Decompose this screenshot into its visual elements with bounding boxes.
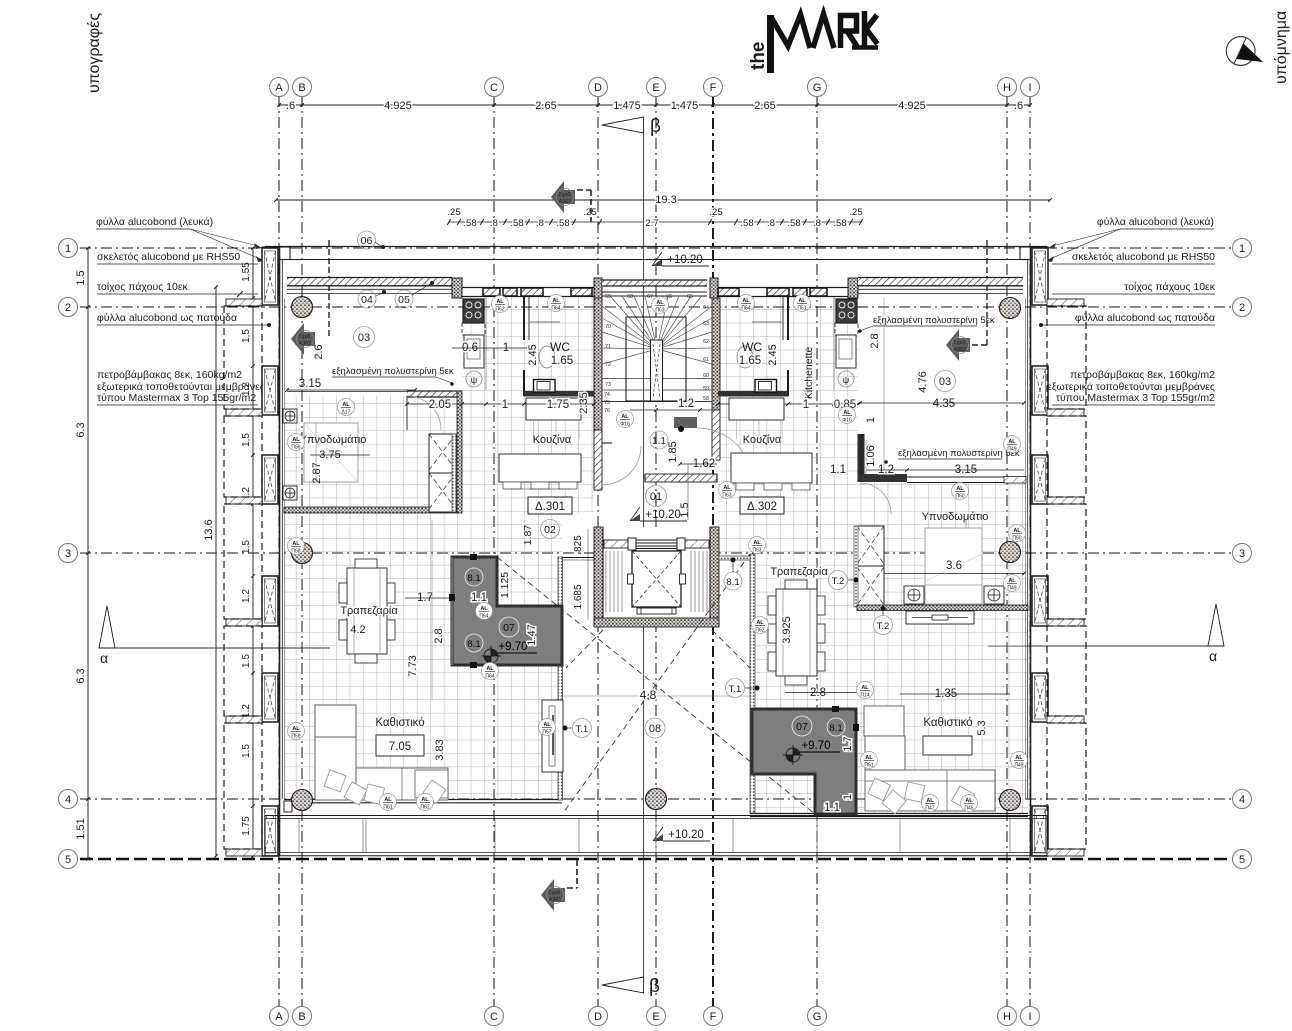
svg-text:AL: AL — [342, 402, 350, 408]
svg-text:Π62: Π62 — [755, 628, 764, 634]
svg-text:εξηλασμένη πολυστερίνη 5εκ: εξηλασμένη πολυστερίνη 5εκ — [898, 448, 1020, 459]
svg-text:Σχεδ.: Σχεδ. — [548, 890, 562, 896]
svg-text:1.2: 1.2 — [678, 398, 694, 410]
svg-text:60: 60 — [703, 373, 709, 379]
svg-text:Σχεδ.: Σχεδ. — [298, 334, 312, 340]
svg-text:Π50: Π50 — [1012, 536, 1021, 542]
svg-text:61: 61 — [703, 357, 709, 363]
svg-text:τοίχος πάχους 10εκ: τοίχος πάχους 10εκ — [1124, 281, 1216, 293]
svg-text:4.925: 4.925 — [898, 100, 926, 112]
svg-text:.58: .58 — [556, 218, 569, 229]
svg-text:5: 5 — [1239, 854, 1245, 866]
svg-text:8.1: 8.1 — [467, 573, 480, 584]
svg-text:Π63: Π63 — [655, 308, 664, 314]
svg-text:2.65: 2.65 — [535, 100, 556, 112]
svg-text:1.5: 1.5 — [241, 654, 252, 668]
svg-text:.58: .58 — [740, 218, 753, 229]
svg-text:1.5: 1.5 — [75, 270, 87, 285]
svg-text:2: 2 — [1239, 302, 1245, 314]
svg-text:1.5: 1.5 — [679, 502, 691, 517]
svg-text:AL: AL — [965, 798, 973, 804]
svg-text:B: B — [298, 82, 305, 94]
svg-text:I: I — [1028, 82, 1031, 94]
svg-text:Π51: Π51 — [797, 306, 806, 312]
svg-text:Π64: Π64 — [479, 614, 488, 620]
svg-text:2.45: 2.45 — [527, 344, 539, 365]
svg-text:.58: .58 — [510, 218, 523, 229]
svg-text:B: B — [298, 1011, 305, 1023]
svg-text:G: G — [813, 82, 822, 94]
svg-text:T.1: T.1 — [729, 684, 742, 695]
svg-text:E: E — [652, 82, 659, 94]
svg-text:7.73: 7.73 — [407, 655, 419, 676]
svg-text:3.925: 3.925 — [781, 616, 793, 644]
svg-text:Δ.302: Δ.302 — [747, 501, 777, 513]
svg-text:04: 04 — [361, 294, 373, 306]
svg-text:6.3: 6.3 — [75, 422, 87, 437]
svg-text:Π64: Π64 — [741, 306, 750, 312]
svg-text:1.55: 1.55 — [241, 262, 252, 282]
svg-text:AL: AL — [292, 726, 300, 732]
svg-text:H: H — [1003, 1011, 1011, 1023]
svg-text:φύλλα alucobond ως πατούδα: φύλλα alucobond ως πατούδα — [1075, 312, 1215, 324]
svg-text:1.125: 1.125 — [499, 572, 511, 598]
svg-text:Π60: Π60 — [955, 494, 964, 500]
svg-text:1.87: 1.87 — [522, 525, 534, 546]
svg-text:α: α — [100, 650, 108, 666]
svg-text:.8: .8 — [536, 218, 544, 229]
svg-text:64: 64 — [703, 305, 709, 311]
svg-text:3: 3 — [1239, 548, 1245, 560]
svg-text:AL: AL — [1008, 578, 1016, 584]
svg-text:AL: AL — [798, 298, 806, 304]
svg-text:AL: AL — [843, 410, 851, 416]
svg-text:1.5: 1.5 — [241, 540, 252, 554]
svg-text:Π47: Π47 — [925, 806, 934, 812]
svg-text:67: 67 — [647, 294, 653, 300]
svg-text:πετροβάμβακας 8εκ, 160kg/m2: πετροβάμβακας 8εκ, 160kg/m2 — [97, 369, 242, 381]
svg-text:07: 07 — [503, 622, 515, 634]
svg-text:Π63: Π63 — [752, 548, 761, 554]
svg-text:1: 1 — [502, 399, 508, 411]
svg-text:A301: A301 — [559, 199, 572, 205]
svg-text:Υπνοδωμάτιο: Υπνοδωμάτιο — [922, 511, 989, 523]
svg-text:WC: WC — [742, 340, 762, 354]
svg-text:AL: AL — [656, 300, 664, 306]
svg-text:1.75: 1.75 — [241, 816, 252, 836]
svg-text:2.45: 2.45 — [767, 344, 779, 365]
svg-text:AL: AL — [543, 722, 551, 728]
svg-text:τοίχος πάχους 10εκ: τοίχος πάχους 10εκ — [97, 281, 189, 293]
svg-text:1.75: 1.75 — [547, 399, 569, 411]
svg-text:7.05: 7.05 — [389, 741, 411, 753]
svg-text:2.8: 2.8 — [433, 628, 445, 643]
svg-text:Φ16: Φ16 — [620, 422, 630, 428]
svg-text:AL: AL — [1015, 755, 1023, 761]
svg-text:β: β — [650, 116, 661, 137]
svg-text:AL: AL — [865, 755, 873, 761]
svg-text:Π58: Π58 — [291, 549, 300, 555]
svg-text:AL: AL — [753, 540, 761, 546]
svg-text:ψ: ψ — [471, 375, 477, 385]
svg-text:Δ17: Δ17 — [342, 410, 351, 416]
svg-text:φύλλα alucobond ως πατούδα: φύλλα alucobond ως πατούδα — [97, 312, 237, 324]
svg-text:AL: AL — [956, 486, 964, 492]
svg-text:σκελετός alucobond με RHS50: σκελετός alucobond με RHS50 — [1072, 251, 1215, 263]
svg-text:C: C — [490, 1011, 498, 1023]
svg-text:AL: AL — [1008, 439, 1016, 445]
svg-text:8.1: 8.1 — [726, 577, 739, 588]
svg-text:AL: AL — [621, 414, 629, 420]
svg-text:AL: AL — [552, 298, 560, 304]
svg-text:Σχεδ.: Σχεδ. — [953, 340, 967, 346]
svg-text:1.5: 1.5 — [241, 744, 252, 758]
svg-text:2.05: 2.05 — [429, 399, 451, 411]
svg-text:2.8: 2.8 — [869, 333, 881, 348]
svg-text:3.83: 3.83 — [434, 739, 446, 760]
svg-text:Καθιστικό: Καθιστικό — [375, 717, 424, 729]
svg-text:1.65: 1.65 — [739, 355, 761, 367]
svg-text:T.2: T.2 — [832, 576, 845, 587]
svg-text:74: 74 — [604, 392, 610, 398]
svg-text:2.8: 2.8 — [810, 687, 826, 699]
svg-text:AL: AL — [421, 797, 429, 803]
svg-text:08: 08 — [649, 723, 661, 735]
svg-text:1.51: 1.51 — [75, 818, 87, 839]
svg-text:3.6: 3.6 — [946, 560, 962, 572]
svg-text:+10.20: +10.20 — [668, 829, 704, 841]
svg-text:1.5: 1.5 — [241, 433, 252, 447]
svg-text:τύπου Mastermax 3 Top 155gr/m2: τύπου Mastermax 3 Top 155gr/m2 — [1056, 392, 1215, 404]
svg-text:πετροβάμβακας 8εκ, 160kg/m2: πετροβάμβακας 8εκ, 160kg/m2 — [1070, 369, 1215, 381]
svg-text:.825: .825 — [573, 535, 584, 555]
svg-text:Kitchenette: Kitchenette — [803, 347, 815, 400]
svg-text:Κουζίνα: Κουζίνα — [533, 434, 572, 446]
svg-text:Π62: Π62 — [420, 805, 429, 811]
svg-text:4: 4 — [1239, 794, 1245, 806]
svg-text:13.6: 13.6 — [203, 519, 215, 540]
svg-text:Π64: Π64 — [551, 306, 560, 312]
svg-text:.8: .8 — [813, 218, 821, 229]
svg-text:76: 76 — [604, 408, 610, 414]
svg-text:2.65: 2.65 — [754, 100, 775, 112]
svg-text:1.47: 1.47 — [526, 624, 538, 645]
svg-text:4.925: 4.925 — [384, 100, 412, 112]
svg-text:1.475: 1.475 — [671, 100, 699, 112]
svg-text:.6: .6 — [1014, 100, 1023, 112]
svg-text:Π51: Π51 — [864, 763, 873, 769]
svg-text:.58: .58 — [463, 218, 476, 229]
svg-text:75: 75 — [604, 400, 610, 406]
svg-text:.8: .8 — [490, 218, 498, 229]
svg-text:D: D — [594, 1011, 602, 1023]
svg-text:6.3: 6.3 — [75, 668, 87, 683]
svg-text:1.1: 1.1 — [652, 436, 666, 447]
svg-text:2.87: 2.87 — [311, 462, 323, 483]
svg-text:03: 03 — [358, 332, 370, 344]
svg-text:φύλλα alucobond (λευκά): φύλλα alucobond (λευκά) — [96, 216, 213, 228]
svg-text:1.85: 1.85 — [667, 441, 679, 462]
svg-text:AL: AL — [496, 299, 504, 305]
svg-text:A: A — [275, 1011, 283, 1023]
svg-text:72: 72 — [605, 362, 611, 368]
svg-text:AL: AL — [292, 437, 300, 443]
svg-text:.58: .58 — [787, 218, 800, 229]
svg-text:.25: .25 — [709, 207, 722, 218]
svg-text:1: 1 — [1239, 243, 1245, 255]
svg-text:1: 1 — [65, 243, 71, 255]
svg-text:Π63: Π63 — [722, 493, 731, 499]
svg-text:H: H — [1003, 82, 1011, 94]
svg-text:G: G — [813, 1011, 822, 1023]
svg-text:05: 05 — [398, 294, 410, 306]
svg-text:02: 02 — [544, 524, 556, 536]
svg-text:AL: AL — [1013, 528, 1021, 534]
svg-text:.25: .25 — [849, 207, 862, 218]
svg-text:.58: .58 — [833, 218, 846, 229]
svg-text:19.3: 19.3 — [655, 194, 676, 206]
svg-text:.6: .6 — [286, 100, 295, 112]
svg-text:AL: AL — [384, 797, 392, 803]
svg-text:4.76: 4.76 — [917, 371, 929, 392]
svg-text:1: 1 — [842, 794, 854, 800]
svg-text:T.2: T.2 — [877, 621, 890, 632]
svg-text:F: F — [710, 1011, 717, 1023]
svg-text:AL: AL — [926, 798, 934, 804]
svg-text:Δ.301: Δ.301 — [535, 501, 565, 513]
svg-text:εξηλασμένη πολυστερίνη 5εκ: εξηλασμένη πολυστερίνη 5εκ — [873, 315, 995, 326]
svg-text:71: 71 — [605, 344, 611, 350]
svg-text:1.685: 1.685 — [573, 584, 584, 609]
svg-text:A302: A302 — [954, 347, 967, 353]
svg-text:AL: AL — [742, 298, 750, 304]
svg-text:T.1: T.1 — [576, 724, 589, 735]
svg-text:F: F — [710, 82, 717, 94]
svg-text:τύπου Mastermax 3 Top 155gr/m2: τύπου Mastermax 3 Top 155gr/m2 — [97, 392, 256, 404]
svg-text:1.2: 1.2 — [241, 589, 252, 603]
svg-text:σκελετός alucobond με RHS50: σκελετός alucobond με RHS50 — [97, 251, 240, 263]
svg-text:α: α — [1209, 648, 1217, 664]
svg-text:E: E — [652, 1011, 659, 1023]
svg-text:4.2: 4.2 — [350, 624, 365, 636]
svg-text:Π56: Π56 — [291, 445, 300, 451]
svg-text:5: 5 — [65, 854, 71, 866]
svg-text:Π62: Π62 — [495, 307, 504, 313]
svg-text:66: 66 — [666, 294, 672, 300]
svg-text:A302: A302 — [299, 341, 312, 347]
svg-text:06: 06 — [361, 235, 373, 247]
svg-text:ψ: ψ — [843, 375, 849, 385]
svg-text:68: 68 — [627, 294, 633, 300]
svg-text:1.5: 1.5 — [241, 329, 252, 343]
svg-text:8.1: 8.1 — [467, 639, 480, 650]
svg-text:69: 69 — [605, 294, 611, 300]
svg-text:2.35: 2.35 — [578, 392, 590, 413]
svg-text:φύλλα alucobond (λευκά): φύλλα alucobond (λευκά) — [1097, 216, 1214, 228]
svg-text:Σχεδ.: Σχεδ. — [558, 192, 572, 198]
svg-text:the: the — [748, 42, 769, 71]
svg-text:Φ16: Φ16 — [842, 418, 852, 424]
svg-text:.25: .25 — [583, 207, 596, 218]
svg-text:.25: .25 — [447, 207, 460, 218]
svg-text:AL: AL — [861, 685, 869, 691]
svg-text:Τραπεζαρία: Τραπεζαρία — [770, 566, 828, 578]
svg-text:4.35: 4.35 — [933, 398, 955, 410]
svg-text:2.7: 2.7 — [645, 218, 658, 229]
svg-text:Π49: Π49 — [1014, 763, 1023, 769]
svg-text:Κουζίνα: Κουζίνα — [743, 434, 782, 446]
svg-text:D: D — [594, 82, 602, 94]
svg-text:A: A — [275, 82, 283, 94]
svg-text:03: 03 — [939, 376, 951, 388]
svg-text:+9.70: +9.70 — [498, 641, 527, 653]
svg-text:1.65: 1.65 — [551, 355, 573, 367]
svg-text:1: 1 — [803, 399, 809, 411]
svg-text:07: 07 — [796, 721, 808, 733]
svg-text:3.15: 3.15 — [299, 378, 321, 390]
svg-text:υπογραφές: υπογραφές — [86, 13, 103, 93]
svg-text:Π49: Π49 — [1007, 586, 1016, 592]
svg-text:AL: AL — [480, 606, 488, 612]
svg-text:5.3: 5.3 — [976, 720, 988, 735]
svg-text:Υπνοδωμάτιο: Υπνοδωμάτιο — [300, 434, 367, 446]
svg-text:υπόμνημα: υπόμνημα — [1273, 11, 1290, 84]
svg-text:4: 4 — [65, 794, 71, 806]
svg-text:1.06: 1.06 — [865, 445, 877, 466]
svg-text:3: 3 — [65, 548, 71, 560]
svg-text:Π61: Π61 — [383, 805, 392, 811]
svg-text:AL: AL — [486, 666, 494, 672]
svg-text:WC: WC — [550, 340, 570, 354]
svg-text:+10.20: +10.20 — [645, 509, 681, 521]
svg-text:2.6: 2.6 — [313, 344, 325, 359]
svg-text:AL: AL — [723, 485, 731, 491]
svg-text:62: 62 — [703, 339, 709, 345]
svg-text:Τραπεζαρία: Τραπεζαρία — [340, 605, 398, 617]
svg-text:1: 1 — [865, 417, 877, 423]
svg-text:Π14: Π14 — [860, 693, 869, 699]
svg-text:Π59: Π59 — [291, 734, 300, 740]
svg-text:70: 70 — [605, 324, 611, 330]
svg-text:63: 63 — [703, 321, 709, 327]
svg-text:C: C — [490, 82, 498, 94]
svg-text:I: I — [1028, 1011, 1031, 1023]
svg-text:A301: A301 — [549, 897, 562, 903]
svg-text:Π49: Π49 — [1007, 447, 1016, 453]
svg-text:1.1: 1.1 — [830, 464, 846, 476]
svg-text:.8: .8 — [767, 218, 775, 229]
svg-text:1.1: 1.1 — [824, 802, 840, 814]
svg-text:2: 2 — [65, 302, 71, 314]
svg-text:εξηλασμένη πολυστερίνη 5εκ: εξηλασμένη πολυστερίνη 5εκ — [332, 366, 454, 377]
svg-text:+9.70: +9.70 — [801, 740, 830, 752]
svg-text:8.1: 8.1 — [829, 723, 842, 734]
svg-text:01: 01 — [650, 491, 662, 503]
svg-text:Π64: Π64 — [485, 674, 494, 680]
svg-text:1.7: 1.7 — [842, 736, 854, 751]
svg-text:59: 59 — [703, 386, 709, 392]
svg-text:AL: AL — [756, 620, 764, 626]
svg-text:Π57: Π57 — [542, 730, 551, 736]
svg-text:AL: AL — [292, 541, 300, 547]
svg-text:Καθιστικό: Καθιστικό — [923, 717, 972, 729]
svg-text:4,8: 4,8 — [640, 688, 657, 702]
svg-text:1.475: 1.475 — [613, 100, 641, 112]
svg-text:Π45: Π45 — [964, 806, 973, 812]
svg-text:73: 73 — [605, 382, 611, 388]
svg-text:β: β — [649, 976, 660, 997]
svg-text:65: 65 — [687, 294, 693, 300]
svg-text:58: 58 — [703, 396, 709, 402]
